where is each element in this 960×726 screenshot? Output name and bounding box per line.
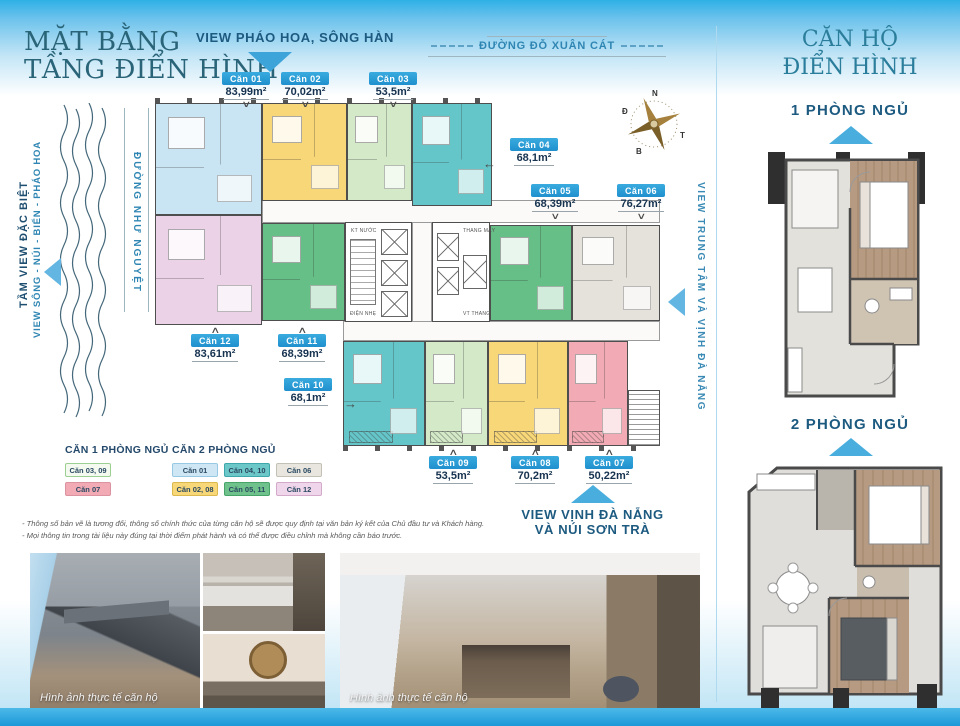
road-line — [124, 108, 125, 312]
chevron-up-icon: ∧ — [604, 448, 614, 456]
one-bedroom-title: 1 PHÒNG NGỦ — [740, 102, 960, 119]
unit-label-can-10: Căn 10 68,1m² → — [273, 378, 343, 406]
legend-chip: Căn 03, 09 — [65, 463, 111, 477]
unit-label-can-03: Căn 03 53,5m² ∨ — [358, 72, 428, 108]
legend-chip: Căn 01 — [172, 463, 218, 477]
unit-area: 68,1m² — [514, 152, 555, 166]
one-bedroom-floorplan — [760, 148, 940, 412]
legend-2br: CĂN 2 PHÒNG NGỦ Căn 01 Căn 04, 10 Căn 06… — [172, 444, 322, 496]
unit-label-can-02: Căn 02 70,02m² ∨ — [270, 72, 340, 108]
unit-area: 53,5m² — [373, 86, 414, 100]
road-label-left: ĐƯỜNG NHƯ NGUYỆT — [131, 152, 142, 293]
unit-can-11 — [262, 223, 345, 321]
core-label: VT THANG — [463, 311, 491, 317]
unit-can-12 — [155, 215, 262, 325]
legend-1br: CĂN 1 PHÒNG NGỦ Căn 03, 09 Căn 07 — [65, 444, 169, 496]
road-dash — [621, 45, 663, 47]
unit-area: 50,22m² — [586, 470, 633, 484]
arrow-up-icon — [829, 438, 873, 456]
stairs — [350, 239, 376, 305]
unit-label-can-07: ∧ Căn 07 50,22m² — [574, 448, 644, 484]
core-label: KT NƯỚC — [351, 228, 377, 234]
unit-pill: Căn 02 — [281, 72, 329, 85]
unit-pill: Căn 06 — [617, 184, 665, 197]
unit-pill: Căn 08 — [511, 456, 559, 469]
photo-bedroom-large — [30, 553, 200, 711]
view-label-left-sub: VIEW SÔNG - NÚI - BIỂN - PHÁO HOA — [32, 141, 43, 338]
chevron-down-icon: ∨ — [636, 212, 646, 220]
unit-pill: Căn 04 — [510, 138, 558, 151]
unit-can-04 — [412, 103, 492, 206]
unit-can-06 — [572, 225, 660, 321]
bottom-blue-strip — [0, 708, 960, 726]
legend-chip: Căn 05, 11 — [224, 482, 270, 496]
chevron-up-icon: ∧ — [448, 448, 458, 456]
unit-label-can-11: ∧ Căn 11 68,39m² — [267, 326, 337, 362]
core-label: THANG MÁY — [463, 228, 495, 234]
river-waves-icon — [56, 103, 112, 435]
road-label-top: ĐƯỜNG ĐỖ XUÂN CÁT — [428, 36, 666, 57]
arrow-left-icon — [668, 288, 685, 316]
unit-area: 68,39m² — [532, 198, 579, 212]
balcony — [349, 431, 393, 443]
elevator-icon — [381, 229, 408, 255]
photo-kitchen-living: Hình ảnh thực tế căn hộ — [340, 553, 700, 711]
legend-chip: Căn 07 — [65, 482, 111, 496]
elevator-icon — [381, 291, 408, 317]
corridor — [412, 222, 432, 322]
unit-pill: Căn 03 — [369, 72, 417, 85]
unit-area: 70,02m² — [282, 86, 329, 100]
road-line — [428, 56, 666, 57]
chevron-up-icon: ∧ — [210, 326, 220, 334]
two-bedroom-floorplan — [737, 458, 953, 710]
unit-pill: Căn 10 — [284, 378, 332, 391]
chevron-down-icon: ∨ — [550, 212, 560, 220]
unit-pill: Căn 12 — [191, 334, 239, 347]
unit-pill: Căn 07 — [585, 456, 633, 469]
disclaimer: - Thông số bản vẽ là tương đối, thông số… — [22, 518, 492, 542]
arrow-left-icon — [44, 258, 61, 286]
unit-area: 53,5m² — [433, 470, 474, 484]
photo-caption: Hình ảnh thực tế căn hộ — [40, 692, 158, 704]
unit-area: 76,27m² — [618, 198, 665, 212]
unit-can-09 — [425, 341, 488, 446]
unit-area: 68,1m² — [288, 392, 329, 406]
chevron-down-icon: ∨ — [388, 100, 398, 108]
legend-chip: Căn 04, 10 — [224, 463, 270, 477]
svg-text:N: N — [652, 89, 658, 98]
view-label-left-bold: TẦM VIEW ĐẶC BIỆT — [18, 181, 30, 308]
road-dash — [431, 45, 473, 47]
arrow-up-icon — [571, 485, 615, 503]
photo-caption: Hình ảnh thực tế căn hộ — [350, 692, 468, 704]
road-line — [487, 36, 607, 37]
compass-icon: N Đ T B — [616, 88, 692, 158]
photo-bathroom — [203, 634, 325, 712]
balcony — [494, 431, 537, 443]
elevator-core-a: KT NƯỚC ĐIỆN NHẸ — [345, 222, 412, 322]
unit-label-can-06: Căn 06 76,27m² ∨ — [606, 184, 676, 220]
unit-label-can-12: ∧ Căn 12 83,61m² — [180, 326, 250, 362]
corridor — [343, 321, 660, 341]
photo-bedroom-small — [203, 553, 325, 631]
unit-can-03 — [347, 103, 412, 201]
disclaimer-line1: - Thông số bản vẽ là tương đối, thông số… — [22, 518, 492, 530]
elevator-icon — [463, 255, 487, 289]
view-label-bottom: VIEW VỊNH ĐÀ NẴNG VÀ NÚI SƠN TRÀ — [500, 485, 685, 537]
chevron-up-icon: ∧ — [530, 448, 540, 456]
brochure-page: MẶT BẰNG TẦNG ĐIỂN HÌNH VIEW PHÁO HOA, S… — [0, 0, 960, 726]
elevator-core-b: THANG MÁY VT THANG — [432, 222, 490, 322]
legend-chip: Căn 12 — [276, 482, 322, 496]
view-label-top: VIEW PHÁO HOA, SÔNG HÀN — [195, 30, 395, 45]
balcony — [572, 431, 604, 443]
legend-chip: Căn 02, 08 — [172, 482, 218, 496]
disclaimer-line2: - Mọi thông tin trong tài liệu này đúng … — [22, 530, 492, 542]
svg-text:B: B — [636, 147, 642, 156]
chevron-down-icon: ∨ — [241, 100, 251, 108]
unit-pill: Căn 05 — [531, 184, 579, 197]
unit-area: 83,61m² — [192, 348, 239, 362]
legend-2br-title: CĂN 2 PHÒNG NGỦ — [172, 444, 322, 456]
unit-can-05 — [490, 225, 572, 321]
unit-area: 68,39m² — [279, 348, 326, 362]
arrow-right-icon: → — [344, 396, 357, 411]
unit-can-10 — [343, 341, 425, 446]
unit-label-can-05: Căn 05 68,39m² ∨ — [520, 184, 590, 220]
core-label: ĐIỆN NHẸ — [350, 311, 376, 317]
unit-label-can-08: ∧ Căn 08 70,2m² — [500, 448, 570, 484]
elevator-icon — [381, 260, 408, 286]
unit-area: 70,2m² — [515, 470, 556, 484]
balcony — [430, 431, 464, 443]
legend-1br-title: CĂN 1 PHÒNG NGỦ — [65, 444, 169, 456]
unit-pill: Căn 09 — [429, 456, 477, 469]
road-line — [148, 108, 149, 312]
chevron-down-icon: ∨ — [300, 100, 310, 108]
arrow-up-icon — [829, 126, 873, 144]
unit-area: 83,99m² — [223, 86, 270, 100]
arrow-left-icon: ← — [483, 156, 496, 171]
road-name: ĐƯỜNG ĐỖ XUÂN CÁT — [479, 40, 615, 52]
unit-can-07 — [568, 341, 628, 446]
elevator-icon — [437, 233, 459, 261]
two-bedroom-title: 2 PHÒNG NGỦ — [740, 416, 960, 433]
panel-divider — [716, 26, 717, 702]
fire-stairs — [628, 390, 660, 446]
unit-pill: Căn 01 — [222, 72, 270, 85]
unit-can-08 — [488, 341, 568, 446]
svg-text:Đ: Đ — [622, 107, 628, 116]
unit-pill: Căn 11 — [278, 334, 325, 347]
legend-chip: Căn 06 — [276, 463, 322, 477]
unit-label-can-04: ← Căn 04 68,1m² — [499, 138, 569, 166]
chevron-up-icon: ∧ — [297, 326, 307, 334]
right-panel-title: CĂN HỘ ĐIỂN HÌNH — [740, 26, 960, 81]
view-label-right: VIEW TRUNG TÂM VÀ VỊNH ĐÀ NẴNG — [695, 182, 706, 411]
unit-can-02 — [262, 103, 347, 201]
unit-label-can-09: ∧ Căn 09 53,5m² — [418, 448, 488, 484]
unit-can-01 — [155, 103, 262, 215]
elevator-icon — [437, 267, 459, 295]
photo-collage-apartment: Hình ảnh thực tế căn hộ — [30, 553, 325, 711]
svg-text:T: T — [680, 131, 685, 140]
arrow-down-icon — [248, 52, 292, 72]
